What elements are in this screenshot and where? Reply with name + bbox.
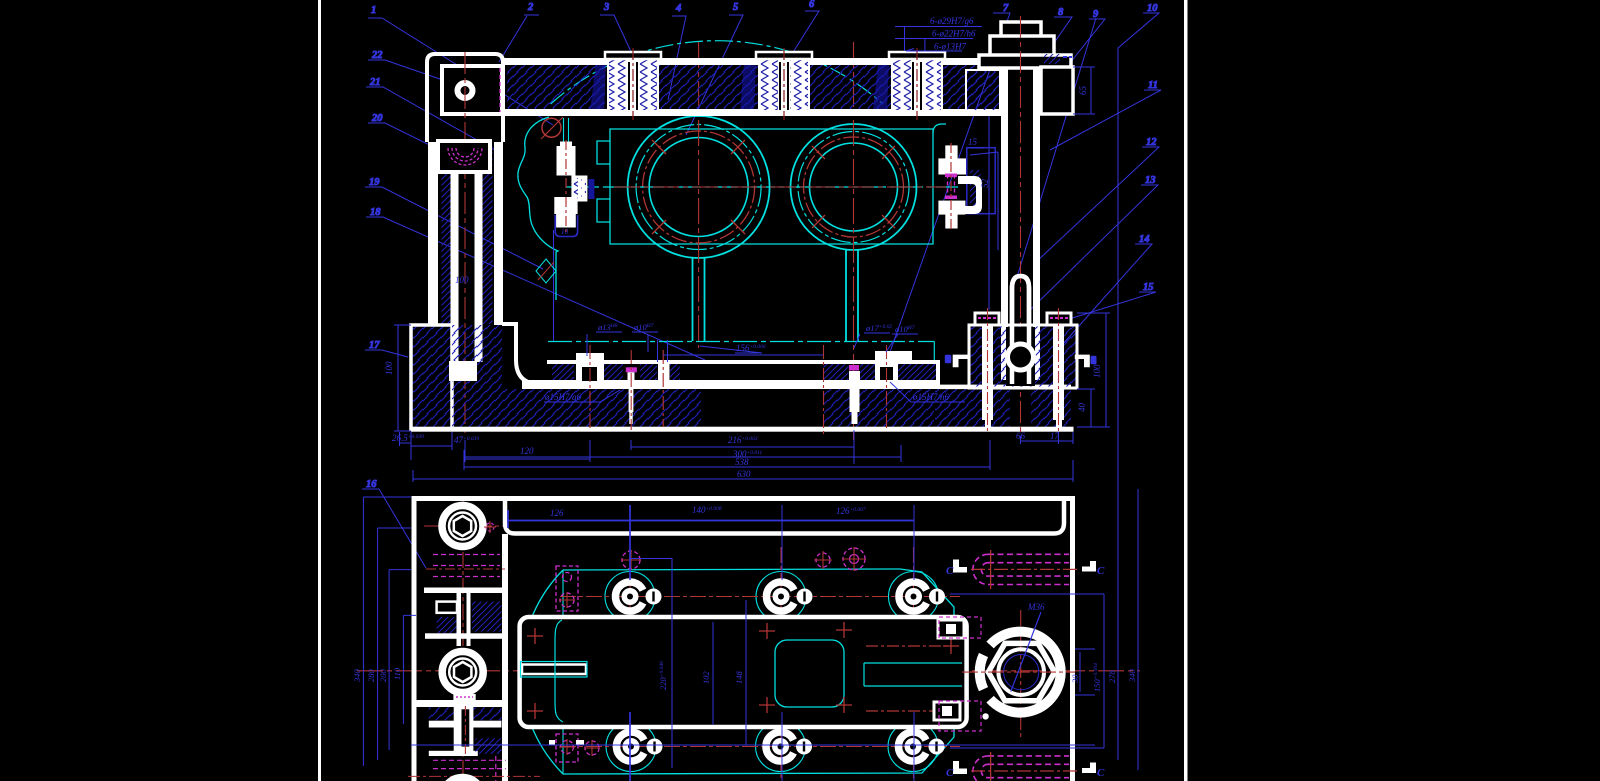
svg-text:C: C [946,565,954,577]
svg-text:17: 17 [1050,431,1060,441]
svg-text:5: 5 [733,2,738,13]
svg-text:13: 13 [1145,175,1156,186]
svg-text:15: 15 [1143,282,1154,293]
svg-text:6-ø22H7/h6: 6-ø22H7/h6 [932,29,976,39]
svg-text:10: 10 [561,228,569,236]
svg-text:15: 15 [968,137,978,147]
svg-text:22: 22 [371,50,383,61]
svg-text:120: 120 [520,446,534,456]
svg-text:100: 100 [1092,364,1102,378]
svg-text:102: 102 [701,671,711,685]
svg-text:18: 18 [370,207,381,218]
svg-text:110: 110 [392,667,402,680]
svg-text:10: 10 [1147,3,1158,14]
svg-text:8: 8 [1058,7,1064,18]
svg-text:12: 12 [1146,137,1157,148]
svg-text:11: 11 [1148,80,1158,91]
svg-text:ø15H7/g6: ø15H7/g6 [544,392,582,402]
svg-text:6: 6 [809,0,815,10]
svg-text:100: 100 [384,361,394,375]
svg-text:278: 278 [1107,670,1117,684]
svg-text:16: 16 [366,479,377,490]
svg-text:C: C [946,767,954,779]
svg-text:30: 30 [1070,674,1080,684]
svg-text:C: C [1097,767,1105,779]
svg-text:126: 126 [550,508,564,518]
svg-text:65: 65 [1078,86,1088,96]
svg-text:1: 1 [371,5,376,16]
svg-text:M36: M36 [1027,602,1045,612]
svg-text:ø15H7/n6: ø15H7/n6 [912,392,950,402]
svg-text:17: 17 [369,340,380,351]
svg-text:630: 630 [737,469,751,479]
svg-text:100: 100 [455,275,469,285]
svg-text:280: 280 [366,669,376,683]
svg-text:52: 52 [980,179,990,189]
svg-text:538: 538 [735,457,749,467]
svg-text:200: 200 [378,669,388,683]
svg-text:14: 14 [1139,234,1150,245]
svg-text:2: 2 [527,2,534,13]
svg-text:148: 148 [734,671,744,685]
svg-text:340: 340 [1127,669,1137,684]
svg-text:6-ø13H7: 6-ø13H7 [934,42,966,52]
svg-text:19: 19 [369,177,380,188]
svg-text:3: 3 [603,2,609,13]
svg-text:20: 20 [371,113,383,124]
svg-text:40: 40 [1077,403,1087,413]
svg-text:7: 7 [1003,3,1009,14]
svg-text:21: 21 [369,77,381,88]
svg-text:6-ø29H7/g6: 6-ø29H7/g6 [930,16,974,26]
svg-text:66: 66 [1016,431,1026,441]
svg-text:4: 4 [675,3,681,14]
svg-text:C: C [1097,565,1105,577]
svg-text:340: 340 [352,669,362,684]
